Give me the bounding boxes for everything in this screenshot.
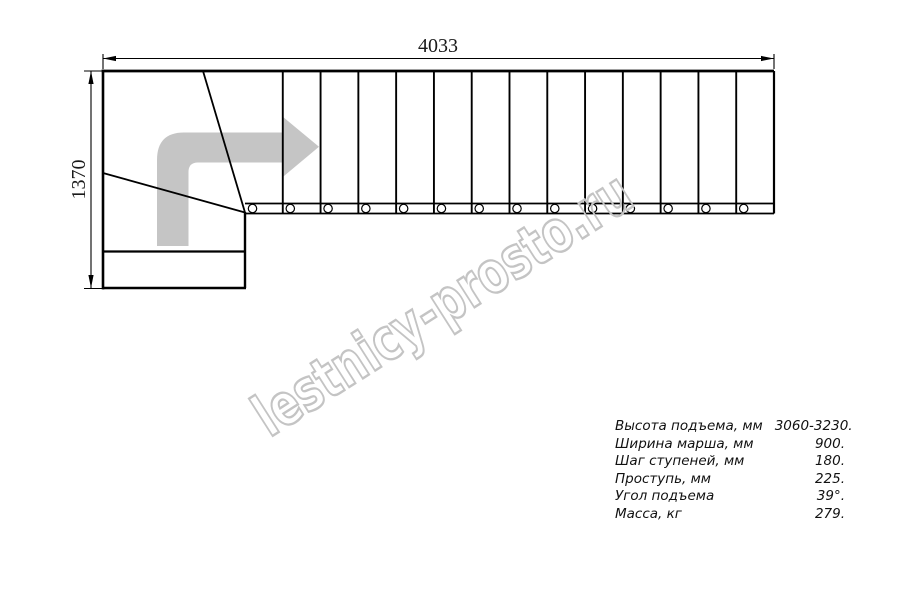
spec-label: Масса, кг (615, 506, 682, 524)
baluster-circle (324, 204, 332, 212)
specs-table: Высота подъема, мм 3060-3230. Ширина мар… (615, 418, 845, 524)
spec-value: 39°. (817, 488, 845, 506)
staircase-outline (102, 70, 774, 290)
baluster-circle (437, 204, 445, 212)
baluster-circle (399, 204, 407, 212)
spec-value: 279. (815, 506, 845, 524)
baluster-circle (362, 204, 370, 212)
baluster-circle (248, 204, 256, 212)
spec-row: Масса, кг 279. (615, 506, 845, 524)
arrow-down-icon (88, 275, 93, 288)
spec-value: 900. (815, 436, 845, 454)
left-dimension-label: 1370 (68, 160, 90, 200)
spec-row: Проступь, мм 225. (615, 471, 845, 489)
baluster-circle (286, 204, 294, 212)
watermark-text: lestnicy-prosto.ru (241, 159, 644, 450)
spec-label: Шаг ступеней, мм (615, 453, 744, 471)
spec-row: Шаг ступеней, мм 180. (615, 453, 845, 471)
arrow-up-icon (88, 71, 93, 84)
baluster-circle (740, 204, 748, 212)
spec-label: Угол подъема (615, 488, 714, 506)
spec-row: Высота подъема, мм 3060-3230. (615, 418, 845, 436)
top-dimension-label: 4033 (418, 35, 458, 57)
baluster-circle (664, 204, 672, 212)
baluster-circle (702, 204, 710, 212)
spec-label: Высота подъема, мм (615, 418, 763, 436)
direction-arrow (157, 117, 319, 247)
arrow-left-icon (103, 56, 116, 61)
spec-value: 180. (815, 453, 845, 471)
baluster-circle (475, 204, 483, 212)
steps-group (248, 71, 748, 214)
drawing-page: 4033 1370 lestnicy-prosto.ru Высота подъ… (0, 0, 900, 600)
top-dimension: 4033 (103, 35, 774, 69)
arrow-right-icon (761, 56, 774, 61)
spec-row: Ширина марша, мм 900. (615, 436, 845, 454)
spec-row: Угол подъема 39°. (615, 488, 845, 506)
spec-label: Ширина марша, мм (615, 436, 754, 454)
spec-value: 3060-3230. (775, 418, 853, 436)
left-dimension: 1370 (68, 71, 103, 289)
spec-label: Проступь, мм (615, 471, 711, 489)
baluster-circle (513, 204, 521, 212)
spec-value: 225. (815, 471, 845, 489)
